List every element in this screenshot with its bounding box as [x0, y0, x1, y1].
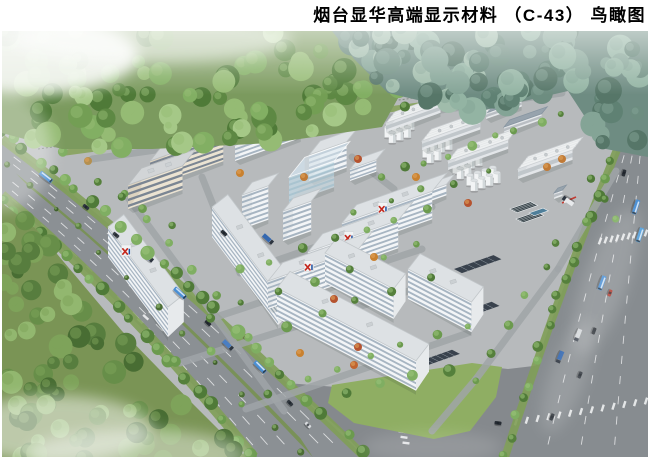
aerial-render-image	[2, 31, 648, 457]
drawing-title: 烟台显华高端显示材料 （C-43） 鸟瞰图	[313, 4, 646, 28]
aerial-rendering-page: 烟台显华高端显示材料 （C-43） 鸟瞰图	[0, 0, 650, 460]
xianhua-logo	[304, 261, 314, 272]
xianhua-logo	[122, 245, 132, 256]
